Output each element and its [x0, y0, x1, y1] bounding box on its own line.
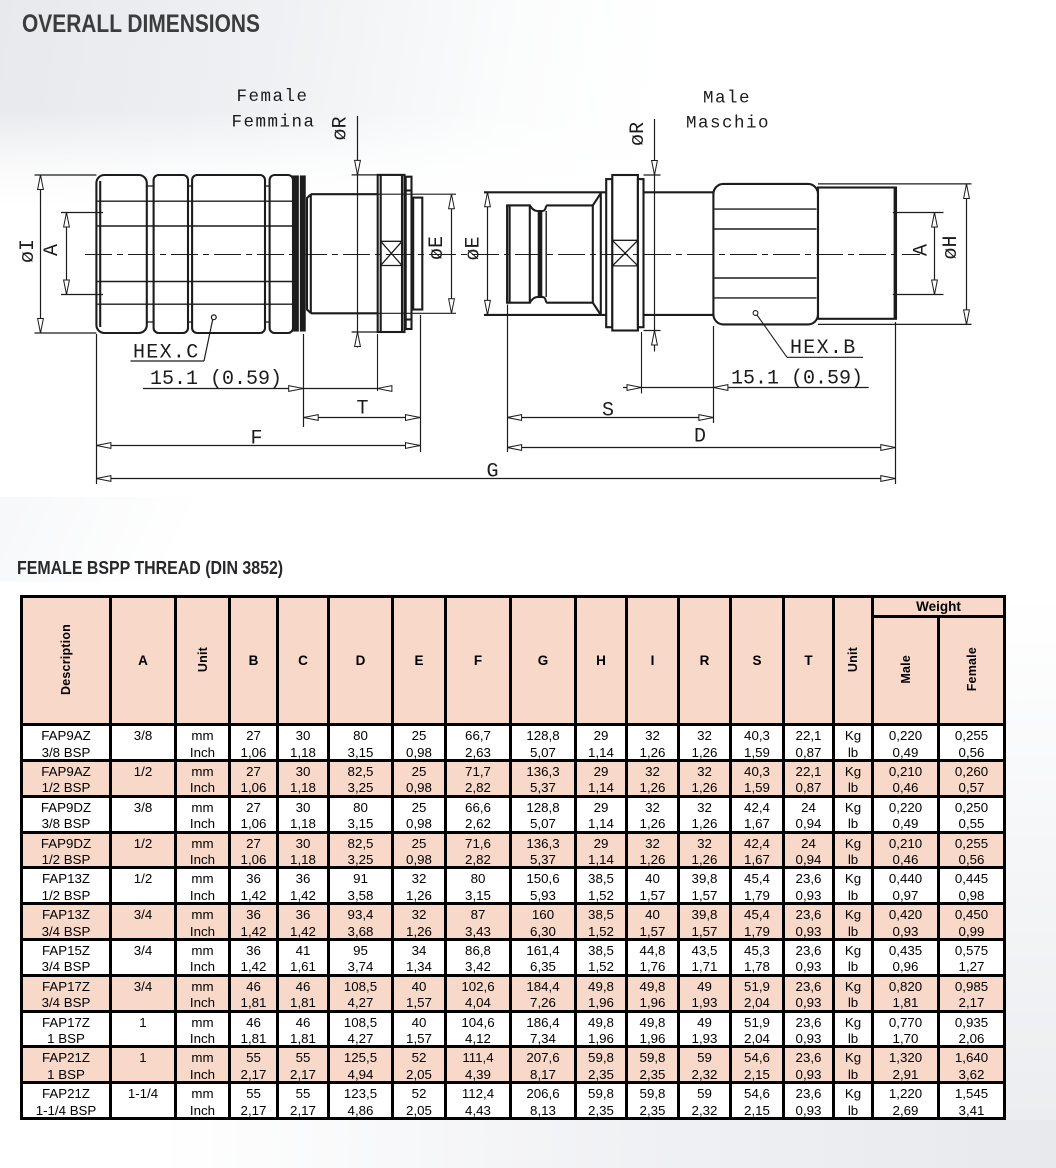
svg-text:Maschio: Maschio — [686, 114, 770, 134]
svg-text:Female: Female — [236, 87, 308, 107]
svg-text:F: F — [250, 428, 262, 451]
svg-text:øR: øR — [627, 122, 650, 146]
svg-text:HEX.C: HEX.C — [133, 342, 200, 365]
svg-text:Male: Male — [703, 89, 751, 109]
svg-text:15.1 (0.59): 15.1 (0.59) — [150, 368, 282, 391]
svg-text:øR: øR — [330, 116, 353, 140]
svg-text:S: S — [602, 400, 614, 423]
svg-text:HEX.B: HEX.B — [790, 337, 857, 360]
svg-text:T: T — [356, 398, 368, 421]
svg-text:øH: øH — [940, 235, 963, 259]
svg-text:A: A — [910, 244, 933, 256]
svg-text:D: D — [694, 426, 706, 449]
svg-text:øI: øI — [17, 239, 40, 263]
svg-text:Femmina: Femmina — [231, 113, 315, 133]
svg-text:øE: øE — [462, 236, 485, 260]
svg-text:15.1 (0.59): 15.1 (0.59) — [731, 368, 863, 391]
svg-text:øE: øE — [426, 236, 449, 260]
svg-text:G: G — [486, 461, 498, 484]
svg-text:A: A — [41, 244, 64, 256]
